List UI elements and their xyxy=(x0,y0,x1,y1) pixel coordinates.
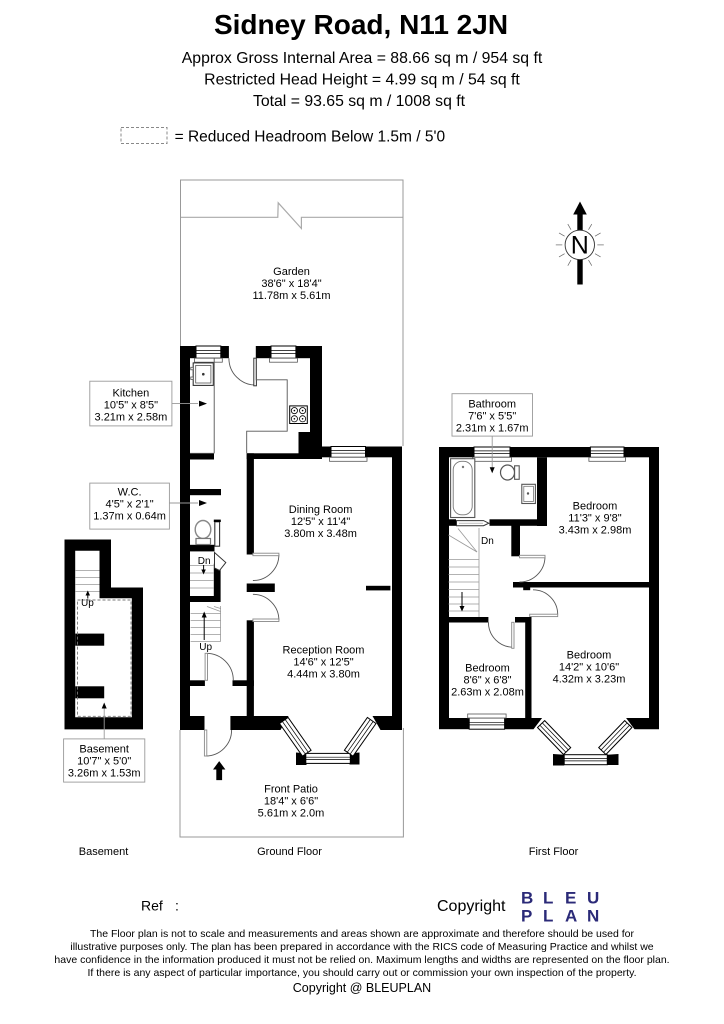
svg-text:14'2" x 10'6": 14'2" x 10'6" xyxy=(559,662,619,674)
svg-text:4'5" x 2'1": 4'5" x 2'1" xyxy=(106,499,154,511)
svg-text:2.31m x 1.67m: 2.31m x 1.67m xyxy=(456,422,529,434)
svg-text:Up: Up xyxy=(81,598,94,609)
svg-text:Reception Room: Reception Room xyxy=(283,644,365,656)
svg-text:4.44m x 3.80m: 4.44m x 3.80m xyxy=(287,668,360,680)
svg-text:Bedroom: Bedroom xyxy=(465,663,510,675)
svg-text:Total = 93.65 sq m / 1008 sq f: Total = 93.65 sq m / 1008 sq ft xyxy=(253,93,466,110)
svg-text:7'6" x 5'5": 7'6" x 5'5" xyxy=(468,410,516,422)
svg-text:Garden: Garden xyxy=(273,266,310,278)
svg-text:3.26m x 1.53m: 3.26m x 1.53m xyxy=(68,767,141,779)
svg-text:have confidence in the informa: have confidence in the information produ… xyxy=(54,954,669,966)
svg-text::: : xyxy=(175,898,179,914)
svg-text:B: B xyxy=(521,889,533,908)
svg-text:12'5" x 11'4": 12'5" x 11'4" xyxy=(291,516,351,528)
svg-text:Approx Gross Internal Area = 8: Approx Gross Internal Area = 88.66 sq m … xyxy=(182,50,543,67)
svg-text:The Floor plan is not to scale: The Floor plan is not to scale and measu… xyxy=(90,928,634,940)
svg-text:3.21m x 2.58m: 3.21m x 2.58m xyxy=(95,411,168,423)
svg-text:Front Patio: Front Patio xyxy=(264,784,318,796)
svg-text:Restricted Head Height = 4.99: Restricted Head Height = 4.99 sq m / 54 … xyxy=(204,72,520,89)
svg-text:Sidney Road, N11 2JN: Sidney Road, N11 2JN xyxy=(214,9,508,40)
svg-text:L: L xyxy=(543,907,553,926)
svg-text:4.32m x 3.23m: 4.32m x 3.23m xyxy=(553,674,626,686)
svg-text:8'6" x 6'8": 8'6" x 6'8" xyxy=(463,675,511,687)
svg-text:5.61m x 2.0m: 5.61m x 2.0m xyxy=(258,808,325,820)
svg-text:Copyright: Copyright xyxy=(437,898,506,915)
svg-text:Dn: Dn xyxy=(481,536,494,547)
svg-text:First Floor: First Floor xyxy=(529,846,579,858)
svg-text:11'3" x 9'8": 11'3" x 9'8" xyxy=(568,513,621,525)
svg-text:Bedroom: Bedroom xyxy=(573,501,618,513)
svg-text:11.78m x 5.61m: 11.78m x 5.61m xyxy=(252,290,330,302)
svg-text:Dining Room: Dining Room xyxy=(289,504,353,516)
svg-text:3.43m x 2.98m: 3.43m x 2.98m xyxy=(559,525,632,537)
svg-text:2.63m x 2.08m: 2.63m x 2.08m xyxy=(451,687,524,699)
svg-text:U: U xyxy=(587,889,599,908)
svg-text:38'6" x 18'4": 38'6" x 18'4" xyxy=(261,278,321,290)
svg-text:3.80m x 3.48m: 3.80m x 3.48m xyxy=(284,528,357,540)
svg-text:L: L xyxy=(543,889,553,908)
svg-text:Basement: Basement xyxy=(79,743,129,755)
svg-text:Dn: Dn xyxy=(198,556,211,567)
svg-text:Copyright @ BLEUPLAN: Copyright @ BLEUPLAN xyxy=(293,981,431,995)
svg-text:Up: Up xyxy=(199,642,212,653)
svg-text:Bathroom: Bathroom xyxy=(468,398,516,410)
svg-text:Kitchen: Kitchen xyxy=(113,387,150,399)
svg-text:10'7" x 5'0": 10'7" x 5'0" xyxy=(77,755,131,767)
svg-text:E: E xyxy=(565,889,576,908)
svg-text:W.C.: W.C. xyxy=(118,487,142,499)
svg-text:1.37m x 0.64m: 1.37m x 0.64m xyxy=(93,511,166,523)
svg-text:If there is any aspect of part: If there is any aspect of particular imp… xyxy=(88,967,637,979)
svg-text:A: A xyxy=(565,907,577,926)
svg-text:10'5" x 8'5": 10'5" x 8'5" xyxy=(104,399,158,411)
svg-text:illustrative purposes only. Th: illustrative purposes only. The plan has… xyxy=(70,941,653,953)
svg-text:Ground Floor: Ground Floor xyxy=(257,846,322,858)
svg-text:Bedroom: Bedroom xyxy=(567,650,612,662)
svg-text:= Reduced Headroom Below 1.5m: = Reduced Headroom Below 1.5m / 5'0 xyxy=(175,129,446,146)
svg-text:N: N xyxy=(587,907,599,926)
svg-text:N: N xyxy=(571,232,589,260)
svg-text:Ref: Ref xyxy=(141,898,163,914)
svg-text:14'6" x 12'5": 14'6" x 12'5" xyxy=(293,656,353,668)
svg-text:Basement: Basement xyxy=(79,846,129,858)
svg-text:P: P xyxy=(521,907,532,926)
svg-text:18'4" x 6'6": 18'4" x 6'6" xyxy=(264,796,318,808)
